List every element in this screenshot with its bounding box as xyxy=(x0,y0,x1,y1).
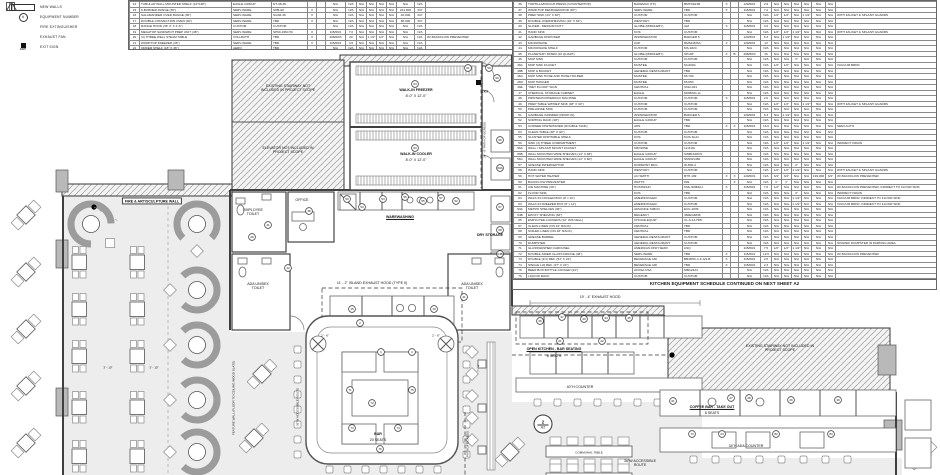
svg-text:30: 30 xyxy=(836,398,840,402)
equipment-number-icon: # xyxy=(19,13,28,22)
feature-wall-label: FEATURE WALL (FLOOR TO CEILING WOOD SLAT… xyxy=(232,361,235,435)
svg-text:56: 56 xyxy=(403,195,407,199)
svg-text:36: 36 xyxy=(538,319,542,323)
svg-text:42: 42 xyxy=(286,266,290,270)
egress-dim: 34' - 0" PATH OF EGRESS xyxy=(483,122,486,158)
walkin-cooler-dims: 8'-0" X 12'-0" xyxy=(406,158,427,162)
svg-text:29: 29 xyxy=(789,398,793,402)
egress-label: PATH OF EGRESS xyxy=(466,431,469,457)
svg-text:54: 54 xyxy=(381,197,385,201)
svg-text:64B: 64B xyxy=(497,252,502,256)
legend-label: EQUIPMENT NUMBER xyxy=(40,15,79,19)
svg-text:27: 27 xyxy=(729,396,733,400)
legend-label: FIRE EXTINGUISHER xyxy=(40,25,78,29)
svg-text:28: 28 xyxy=(747,396,751,400)
svg-text:61: 61 xyxy=(671,399,675,403)
legend-item-equipment-number: # EQUIPMENT NUMBER xyxy=(6,12,128,22)
stairway-block xyxy=(232,60,344,190)
accessible-route-label: 36"W ACCESSIBLE ROUTE xyxy=(620,459,660,467)
svg-text:74: 74 xyxy=(396,426,400,430)
dining-north-wall xyxy=(62,184,232,196)
svg-text:59: 59 xyxy=(487,66,491,70)
exit-marker xyxy=(476,80,481,85)
svg-text:75: 75 xyxy=(410,388,414,392)
legend-item-fire-extinguisher: FIRE EXTINGUISHER xyxy=(6,22,128,32)
aisle-dim: 3' - 10" xyxy=(149,366,158,369)
svg-text:41: 41 xyxy=(266,223,270,227)
bar-seats-label: 20 SEATS xyxy=(370,438,387,442)
svg-text:22: 22 xyxy=(600,339,604,343)
svg-text:71: 71 xyxy=(348,388,352,392)
svg-text:45: 45 xyxy=(627,316,631,320)
svg-text:37: 37 xyxy=(560,315,564,319)
fire-art-wall-label: FIRE & ART/SCULPTURE WALL xyxy=(122,197,182,204)
svg-text:46: 46 xyxy=(250,235,254,239)
svg-text:19: 19 xyxy=(432,307,436,311)
employee-toilet-label: EMPLOYEE TOILET xyxy=(240,208,266,216)
svg-text:43: 43 xyxy=(604,316,608,320)
schedule-continued-note: KITCHEN EQUIPMENT SCHEDULE CONTINUED ON … xyxy=(513,279,936,287)
wall-pier xyxy=(56,170,68,192)
equipment-schedule-right: 36TORTILLA/DOUGH PRESS (COUNTERTOP)BAKEM… xyxy=(512,0,937,290)
island-hood-label: 11' - 2" ISLAND EXHAUST HOOD (TYPE II) xyxy=(337,281,407,285)
dry-storage-label: DRY STORAGE xyxy=(476,233,504,237)
legend-item-exhaust-fan: EXHAUST FAN xyxy=(6,32,128,42)
ada-toilet-right-label: ADA UNISEX TOILET xyxy=(457,282,487,290)
section-sheet: A2 xyxy=(541,425,545,429)
legend-label: EXHAUST FAN xyxy=(40,35,66,39)
section-marker: 2 A2 xyxy=(534,415,553,434)
wall-pier xyxy=(168,170,184,190)
walkin-freezer-label: WALK-IN FREEZER xyxy=(399,88,432,92)
svg-text:64: 64 xyxy=(413,82,417,86)
coffee-bar-label: COFFEE BAR - TAKE OUT xyxy=(690,405,735,409)
bar-dim: 2' - 6" xyxy=(432,334,440,337)
svg-text:15: 15 xyxy=(350,307,354,311)
wall-pier xyxy=(878,345,896,375)
exit-label: EXIT xyxy=(482,90,489,93)
svg-text:60: 60 xyxy=(495,76,499,80)
svg-text:41: 41 xyxy=(462,295,466,299)
walkin-freezer-dims: 8'-0" X 12'-0" xyxy=(406,94,427,98)
legend-item-new-walls: NEW WALLS xyxy=(6,2,128,12)
bar-dim: 2' - 6" xyxy=(321,334,329,337)
legend-label: NEW WALLS xyxy=(40,5,62,9)
svg-text:52: 52 xyxy=(454,199,458,203)
svg-text:67: 67 xyxy=(498,205,502,209)
svg-text:68: 68 xyxy=(498,228,502,232)
svg-text:55: 55 xyxy=(421,199,425,203)
svg-text:53: 53 xyxy=(360,205,364,209)
aisle-dim: 3' - 10" xyxy=(103,366,112,369)
ada-counter-label: 34"H ADA COUNTER xyxy=(729,444,764,448)
banquette-dim: 7' - 4" xyxy=(477,364,480,372)
legend: NEW WALLS # EQUIPMENT NUMBER FIRE EXTING… xyxy=(6,2,128,52)
svg-text:73: 73 xyxy=(690,432,694,436)
svg-text:63: 63 xyxy=(413,146,417,150)
coffee-bar-seats: 8 SEATS xyxy=(705,411,720,415)
takeout-floor xyxy=(640,458,902,475)
floor-plan-sheet: 64635961606663A676864B505354565557524846… xyxy=(0,0,940,475)
walkin-cooler-label: WALK-IN COOLER xyxy=(400,152,432,156)
exit-sign-icon-text: EXIT xyxy=(20,48,26,51)
exhaust-hood-dim: 19' - 4" EXHAUST HOOD xyxy=(580,295,621,299)
svg-text:82: 82 xyxy=(774,432,778,436)
elevator-note: ELEVATOR NOT INCLUDED IN PROJECT SCOPE xyxy=(260,146,316,154)
stairway2-note: EXISTING STAIRWAY NOT INCLUDED IN PROJEC… xyxy=(738,344,822,352)
legend-item-exit-sign: EXIT EXIT SIGN xyxy=(6,42,128,52)
svg-text:61: 61 xyxy=(466,66,470,70)
legend-label: EXIT SIGN xyxy=(40,45,59,49)
office-label: OFFICE xyxy=(295,198,308,202)
open-kitchen-wall xyxy=(512,306,664,315)
svg-text:72: 72 xyxy=(370,401,374,405)
counter40-label: 40"H COUNTER xyxy=(567,385,594,389)
svg-text:73: 73 xyxy=(350,426,354,430)
exhaust-fan-icon xyxy=(6,2,15,11)
svg-text:24: 24 xyxy=(720,432,724,436)
equipment-schedule-left: 14TUBULAR WALL MOUNTED SHELF (14"X48")EA… xyxy=(128,0,514,50)
communal-table-label: COMMUNAL TABLE xyxy=(575,451,602,454)
warewashing-label: WAREWASHING xyxy=(386,215,414,219)
svg-text:76: 76 xyxy=(378,447,382,451)
svg-text:83: 83 xyxy=(829,432,833,436)
svg-text:48: 48 xyxy=(307,209,311,213)
svg-text:50: 50 xyxy=(345,197,349,201)
stairway-note: EXISTING STAIRWAY NOT INCLUDED IN PROJEC… xyxy=(257,84,319,92)
open-kitchen-label: OPEN KITCHEN - BAR SEATING xyxy=(527,347,582,351)
open-kitchen-seats: 8 SEATS xyxy=(547,354,562,358)
ada-toilet-left-label: ADA UNISEX TOILET xyxy=(243,282,273,290)
svg-text:40: 40 xyxy=(582,317,586,321)
svg-text:63A: 63A xyxy=(497,166,502,170)
bar-label: BAR xyxy=(374,432,382,436)
svg-text:21: 21 xyxy=(558,339,562,343)
svg-text:66: 66 xyxy=(498,138,502,142)
svg-text:57: 57 xyxy=(439,196,443,200)
accessible-route-vert-label: 36"W ACCESSIBLE ROUTE xyxy=(296,388,299,426)
